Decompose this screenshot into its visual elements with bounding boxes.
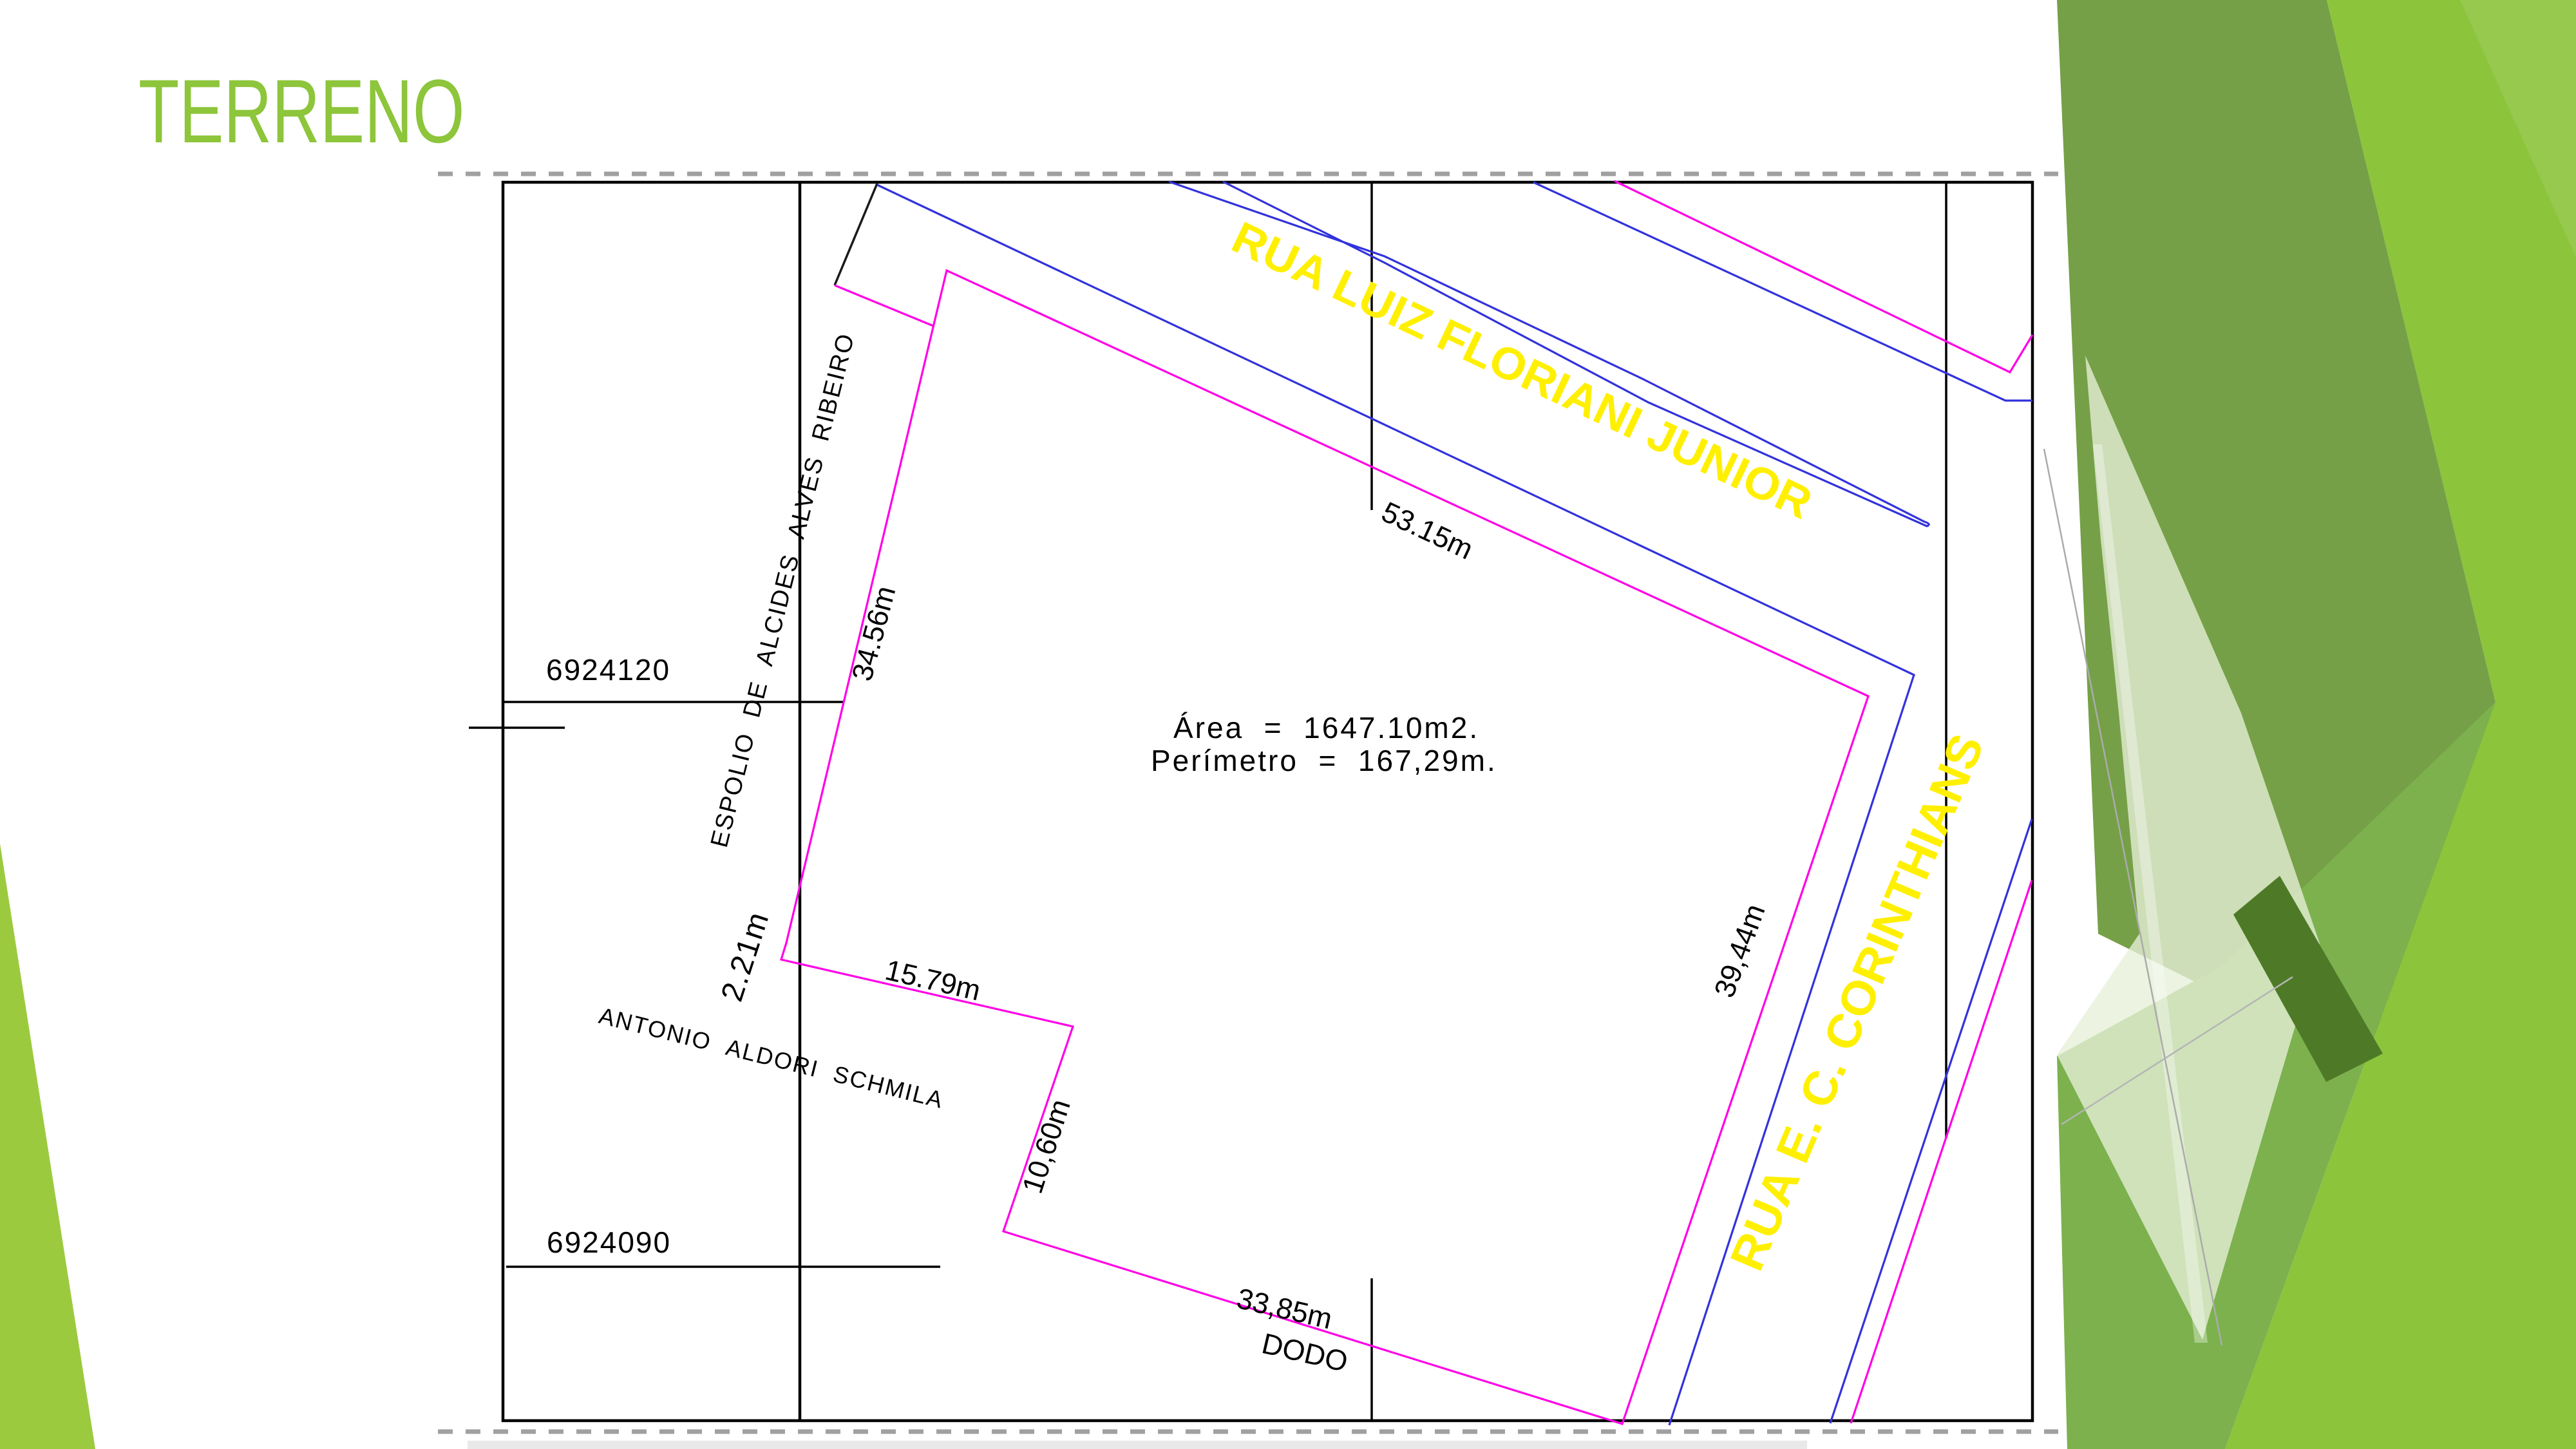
svg-text:6924090: 6924090 xyxy=(547,1226,671,1259)
svg-text:Área = 1647.10m2.: Área = 1647.10m2. xyxy=(1173,711,1479,744)
svg-text:6924120: 6924120 xyxy=(546,653,670,687)
svg-text:Perímetro = 167,29m.: Perímetro = 167,29m. xyxy=(1151,744,1497,777)
svg-text:TERRENO: TERRENO xyxy=(138,62,464,162)
